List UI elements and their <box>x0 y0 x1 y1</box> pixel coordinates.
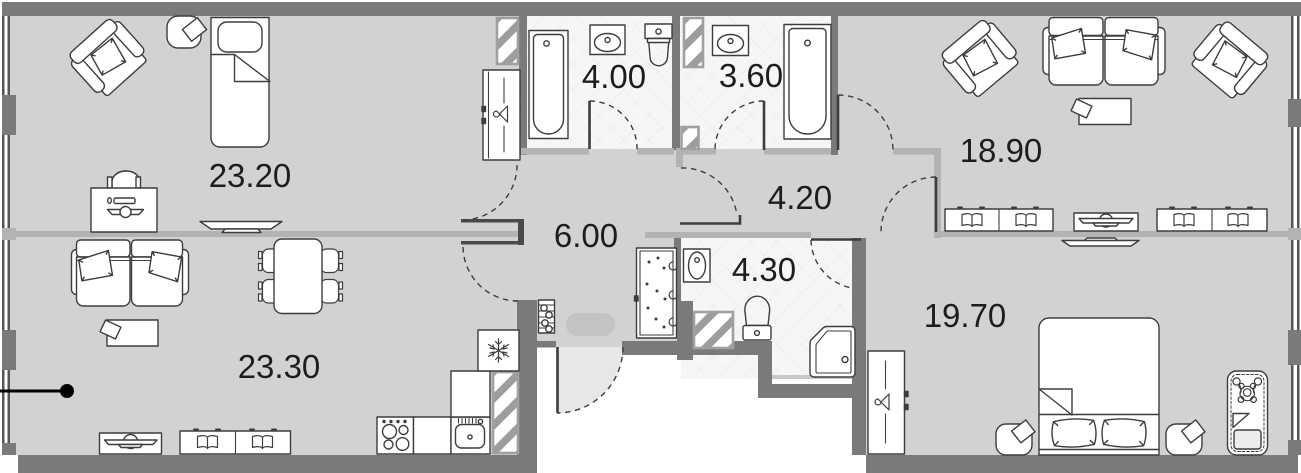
svg-text:3.60: 3.60 <box>719 57 783 94</box>
svg-text:4.00: 4.00 <box>582 58 646 95</box>
svg-text:4.20: 4.20 <box>768 179 832 216</box>
svg-text:18.90: 18.90 <box>960 132 1043 169</box>
svg-text:23.20: 23.20 <box>209 157 292 194</box>
svg-text:4.30: 4.30 <box>732 251 796 288</box>
svg-text:23.30: 23.30 <box>238 348 321 385</box>
svg-text:19.70: 19.70 <box>924 297 1007 334</box>
svg-text:6.00: 6.00 <box>554 217 618 254</box>
